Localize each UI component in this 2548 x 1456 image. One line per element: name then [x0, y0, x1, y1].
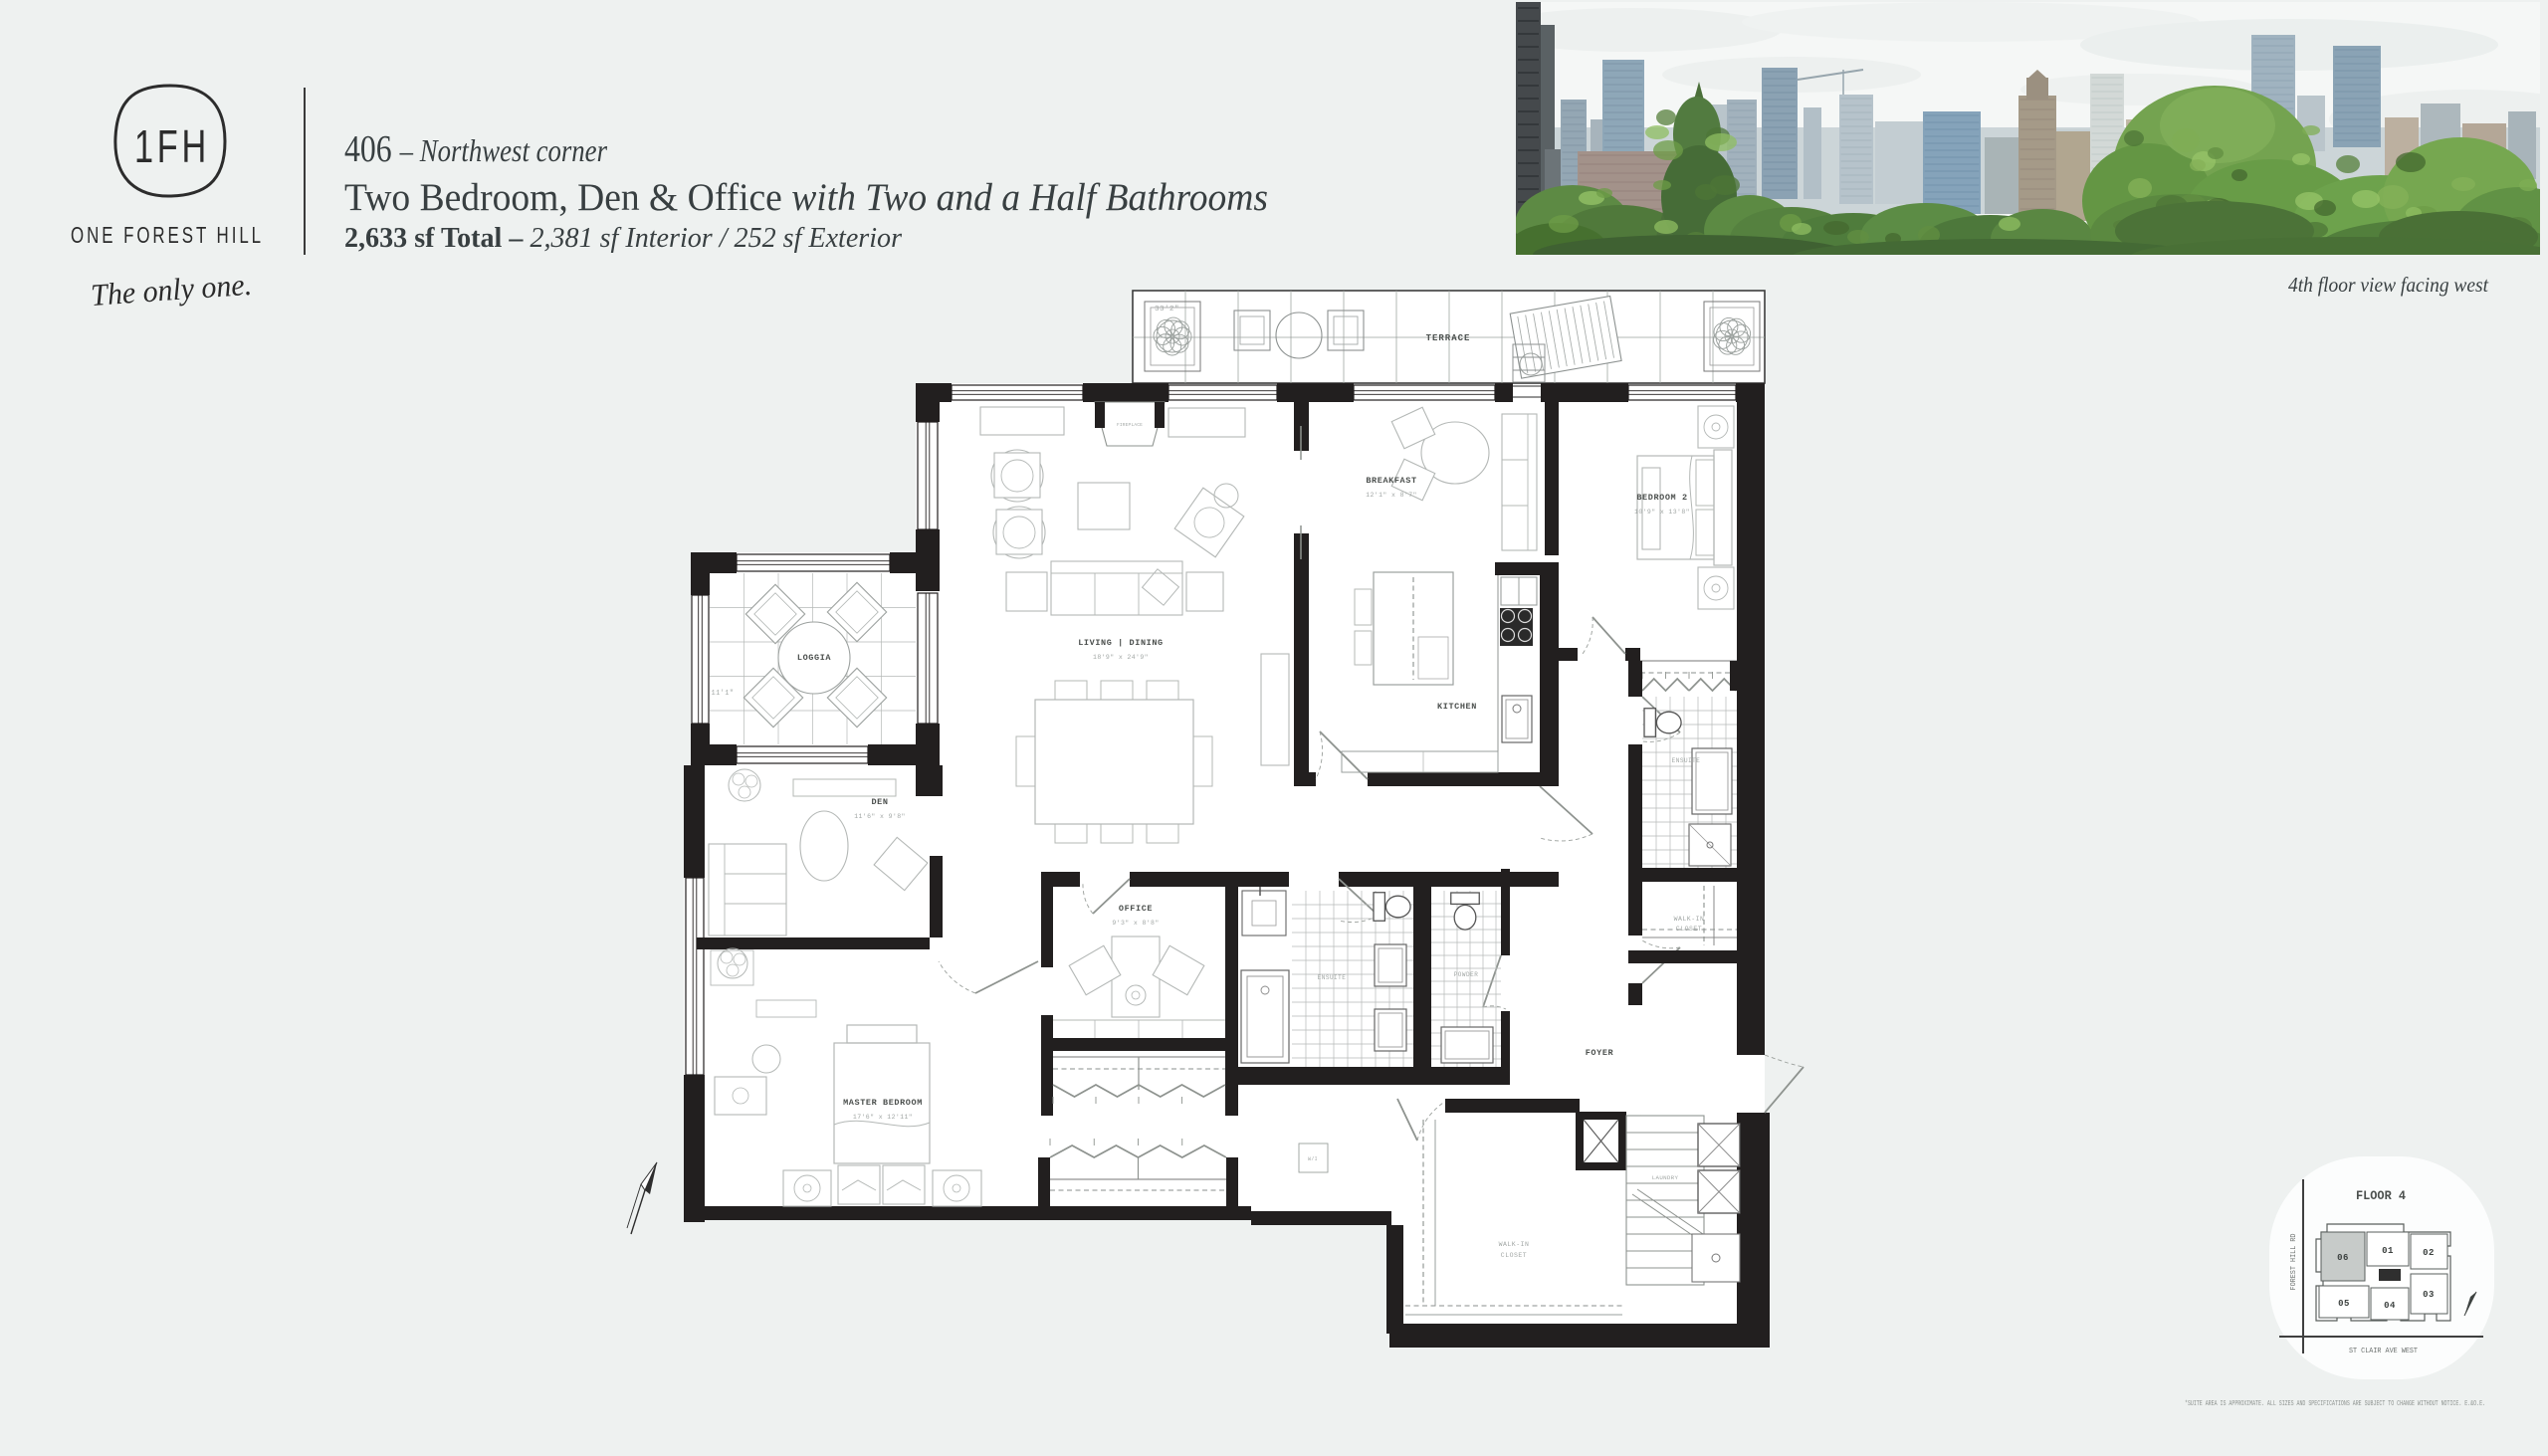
svg-text:KITCHEN: KITCHEN: [1437, 702, 1477, 712]
svg-text:LOGGIA: LOGGIA: [797, 653, 832, 663]
svg-text:33'2": 33'2": [1155, 306, 1179, 313]
svg-text:TERRACE: TERRACE: [1426, 333, 1471, 343]
svg-text:DEN: DEN: [871, 797, 888, 807]
svg-text:*SUITE AREA IS APPROXIMATE. AL: *SUITE AREA IS APPROXIMATE. ALL SIZES AN…: [2185, 1400, 2485, 1408]
svg-text:10'9" x 13'8": 10'9" x 13'8": [1634, 509, 1690, 516]
svg-text:FOYER: FOYER: [1586, 1048, 1614, 1058]
svg-text:11'6" x 9'8": 11'6" x 9'8": [854, 813, 906, 820]
svg-text:FOREST HILL RD: FOREST HILL RD: [2290, 1234, 2298, 1291]
svg-text:OFFICE: OFFICE: [1119, 904, 1153, 914]
svg-text:4th floor view facing west: 4th floor view facing west: [2288, 273, 2489, 297]
svg-text:MASTER BEDROOM: MASTER BEDROOM: [843, 1098, 923, 1108]
svg-text:1FH: 1FH: [134, 120, 210, 172]
svg-text:CLOSET: CLOSET: [1501, 1252, 1527, 1259]
svg-text:FIREPLACE: FIREPLACE: [1117, 422, 1143, 428]
svg-text:2,633 sf Total – 2,381 sf Inte: 2,633 sf Total – 2,381 sf Interior / 252…: [344, 222, 903, 254]
svg-text:ONE FOREST HILL: ONE FOREST HILL: [71, 222, 264, 248]
svg-text:04: 04: [2384, 1301, 2396, 1311]
svg-text:9'3" x 8'8": 9'3" x 8'8": [1112, 920, 1159, 927]
svg-text:ST CLAIR AVE WEST: ST CLAIR AVE WEST: [2349, 1348, 2418, 1355]
svg-text:01: 01: [2382, 1246, 2394, 1256]
svg-text:WALK-IN: WALK-IN: [1674, 916, 1705, 923]
svg-text:18'9" x 24'9": 18'9" x 24'9": [1093, 654, 1149, 661]
svg-text:WALK-IN: WALK-IN: [1499, 1241, 1530, 1248]
svg-text:11'1": 11'1": [711, 690, 734, 698]
svg-text:12'1" x 8'7": 12'1" x 8'7": [1366, 492, 1417, 499]
svg-text:ENSUITE: ENSUITE: [1672, 757, 1701, 764]
svg-text:Two Bedroom, Den & Office with: Two Bedroom, Den & Office with Two and a…: [344, 176, 1268, 219]
svg-text:CLOSET: CLOSET: [1676, 926, 1702, 933]
svg-text:LIVING | DINING: LIVING | DINING: [1078, 638, 1164, 648]
svg-text:BREAKFAST: BREAKFAST: [1366, 476, 1416, 486]
svg-text:BEDROOM 2: BEDROOM 2: [1636, 493, 1687, 503]
svg-text:06: 06: [2337, 1253, 2349, 1263]
svg-text:FLOOR 4: FLOOR 4: [2356, 1188, 2406, 1203]
svg-text:02: 02: [2423, 1248, 2435, 1258]
svg-text:05: 05: [2338, 1299, 2350, 1309]
svg-text:POWDER: POWDER: [1454, 971, 1479, 978]
svg-text:17'6" x 12'11": 17'6" x 12'11": [853, 1114, 913, 1121]
svg-text:ENSUITE: ENSUITE: [1318, 974, 1347, 981]
svg-text:406 – Northwest corner: 406 – Northwest corner: [344, 128, 607, 170]
svg-text:W/I: W/I: [1308, 1156, 1318, 1162]
svg-text:LAUNDRY: LAUNDRY: [1652, 1174, 1679, 1181]
svg-text:03: 03: [2423, 1290, 2435, 1300]
